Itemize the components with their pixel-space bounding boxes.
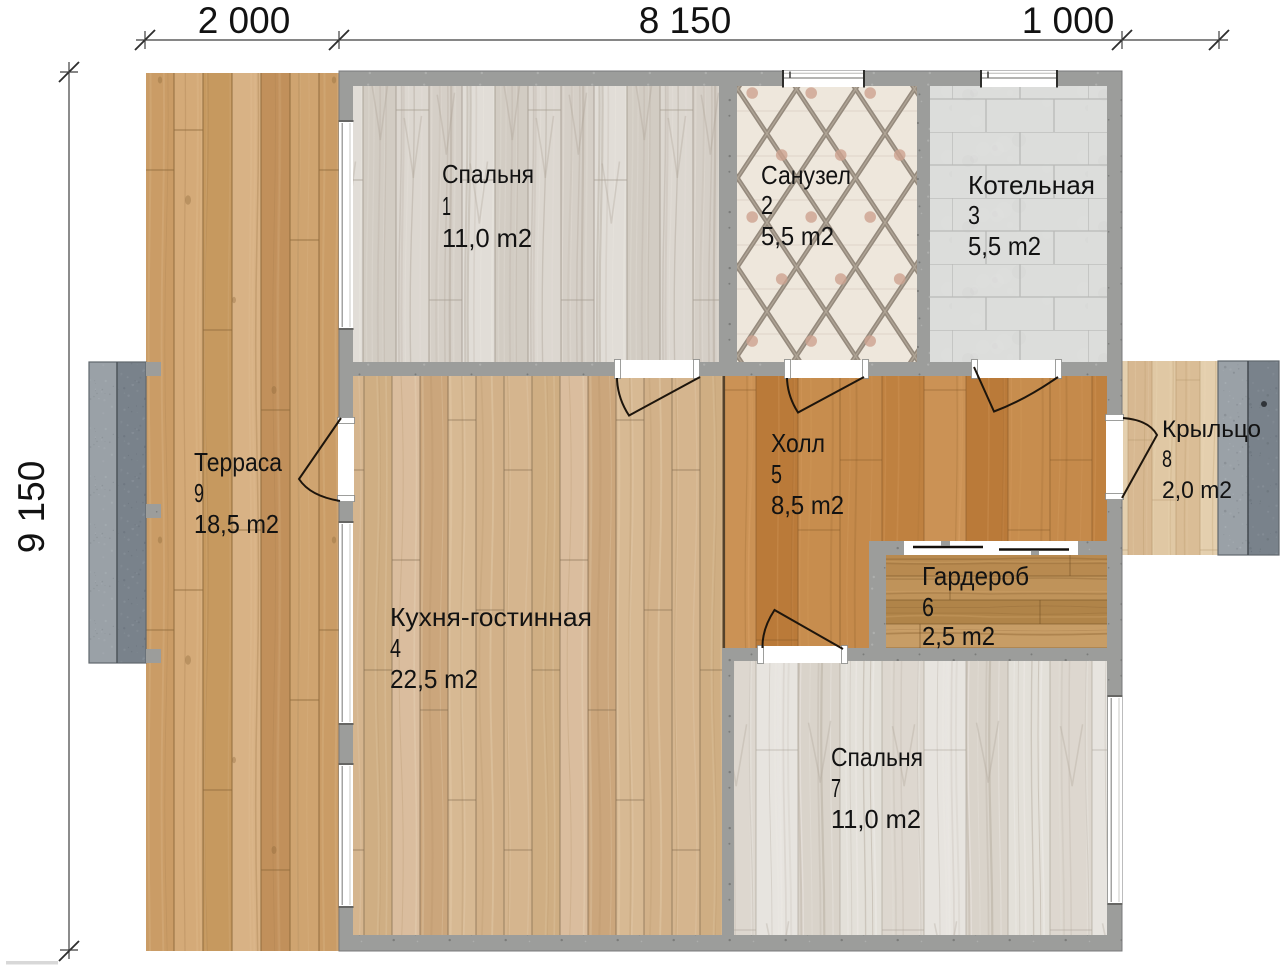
svg-text:18,5 m2: 18,5 m2 — [194, 509, 279, 539]
svg-text:5,5 m2: 5,5 m2 — [761, 221, 834, 251]
svg-text:Котельная: Котельная — [968, 170, 1095, 200]
svg-text:11,0 m2: 11,0 m2 — [442, 223, 532, 253]
svg-text:2,0 m2: 2,0 m2 — [1162, 477, 1232, 504]
svg-text:2,5 m2: 2,5 m2 — [922, 621, 995, 651]
svg-text:Гардероб: Гардероб — [922, 561, 1029, 591]
svg-text:8: 8 — [1162, 446, 1172, 473]
svg-text:4: 4 — [390, 633, 401, 663]
svg-text:22,5 m2: 22,5 m2 — [390, 664, 478, 694]
svg-text:9 150: 9 150 — [11, 461, 52, 554]
svg-text:Холл: Холл — [771, 428, 825, 458]
svg-text:Спальня: Спальня — [442, 159, 534, 189]
svg-text:Кухня-гостинная: Кухня-гостинная — [390, 602, 592, 632]
svg-text:2: 2 — [761, 190, 773, 220]
svg-text:3: 3 — [968, 200, 980, 230]
svg-text:9: 9 — [194, 478, 204, 508]
svg-text:2 000: 2 000 — [198, 0, 291, 41]
svg-text:5,5 m2: 5,5 m2 — [968, 231, 1041, 261]
svg-text:6: 6 — [922, 592, 934, 622]
svg-text:1 000: 1 000 — [1022, 0, 1115, 41]
svg-text:7: 7 — [831, 773, 841, 803]
svg-text:11,0 m2: 11,0 m2 — [831, 804, 921, 834]
svg-text:Терраса: Терраса — [194, 447, 282, 477]
svg-text:Санузел: Санузел — [761, 160, 851, 190]
svg-text:5: 5 — [771, 459, 782, 489]
svg-text:Спальня: Спальня — [831, 742, 923, 772]
svg-text:8,5 m2: 8,5 m2 — [771, 490, 844, 520]
svg-text:8 150: 8 150 — [639, 0, 732, 41]
svg-text:1: 1 — [442, 191, 451, 221]
svg-text:Крыльцо: Крыльцо — [1162, 416, 1261, 443]
